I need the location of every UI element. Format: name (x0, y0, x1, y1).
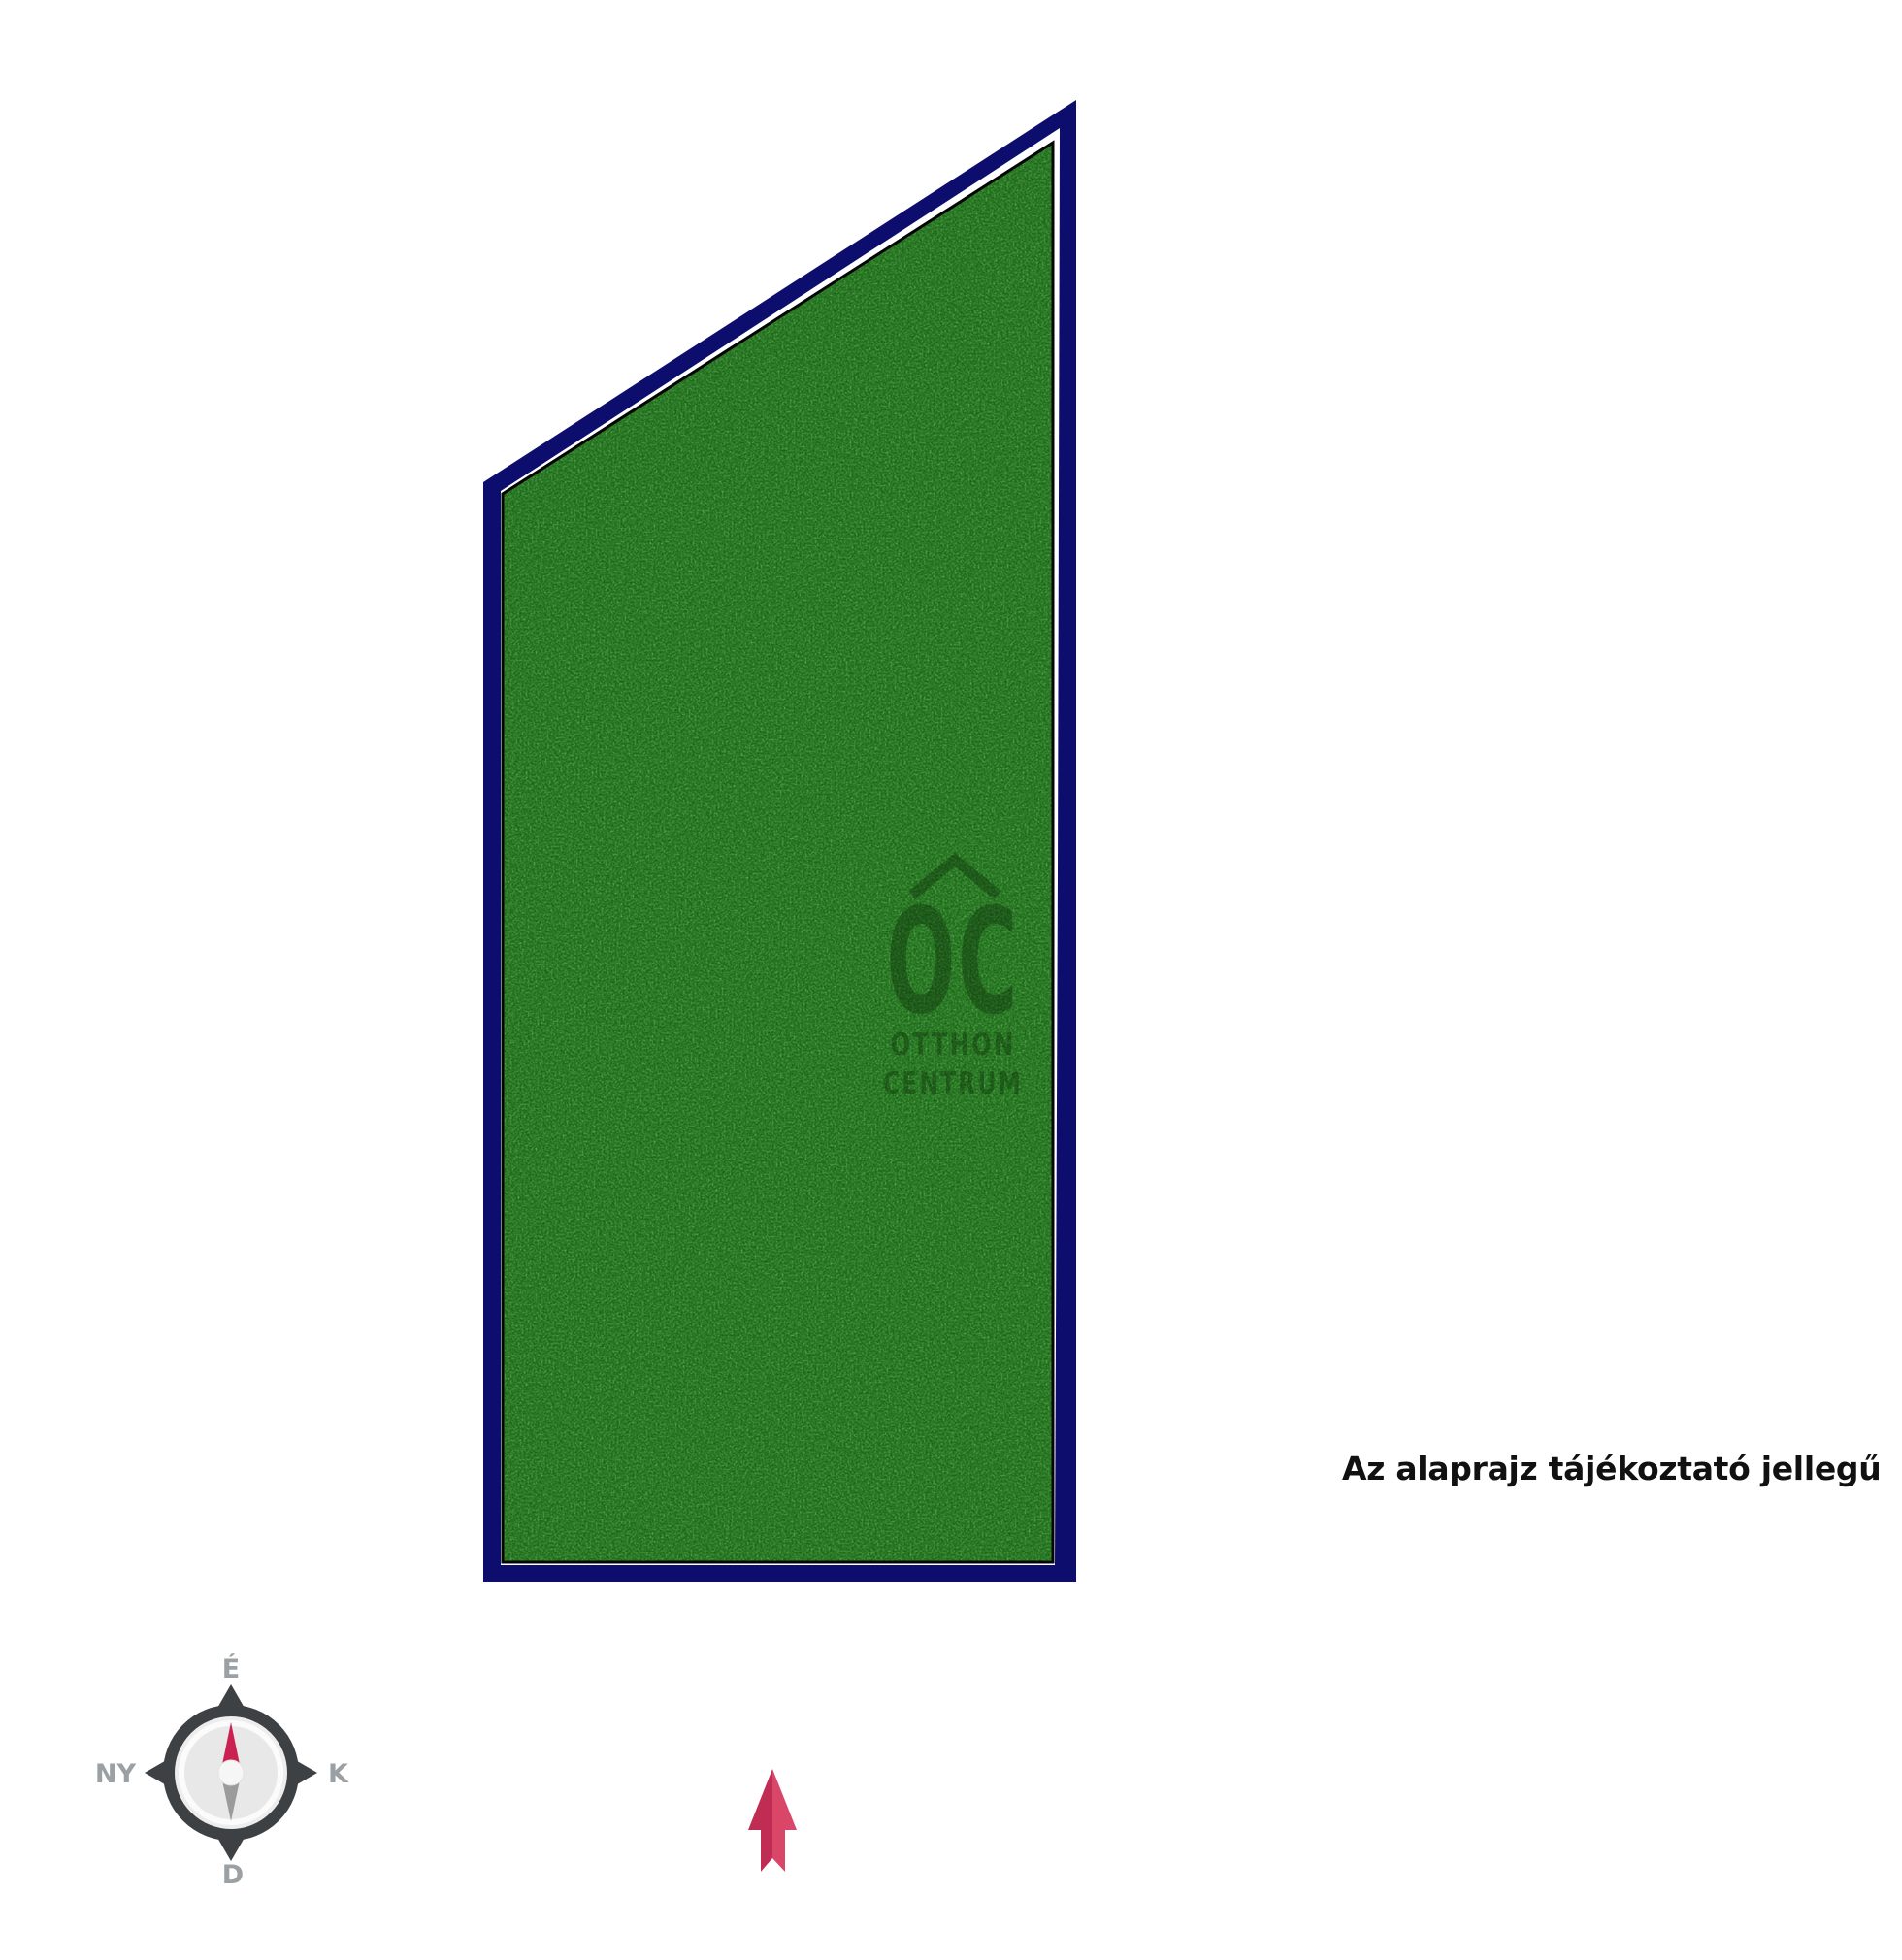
site-plan-page: OC OTTHON CENTRUM É D NY K (0, 0, 1902, 1960)
land-parcel: OC OTTHON CENTRUM (475, 92, 1087, 1591)
compass-label-east: K (328, 1759, 349, 1789)
north-arrow-right-half (772, 1769, 797, 1872)
compass-label-south: D (222, 1860, 244, 1890)
compass-label-west: NY (95, 1759, 137, 1789)
compass-rose: É D NY K (95, 1653, 349, 1890)
watermark-line2: CENTRUM (883, 1067, 1023, 1101)
watermark-logo-text: OC (886, 877, 1020, 1047)
north-arrow-left-half (748, 1769, 772, 1872)
disclaimer-text: Az alaprajz tájékoztató jellegű (1342, 1450, 1881, 1487)
north-arrow-icon (748, 1769, 797, 1872)
watermark-line1: OTTHON (890, 1027, 1015, 1062)
compass-hub (218, 1760, 244, 1785)
compass-label-north: É (222, 1653, 240, 1684)
site-plan-graphic: OC OTTHON CENTRUM É D NY K (0, 0, 1902, 1960)
